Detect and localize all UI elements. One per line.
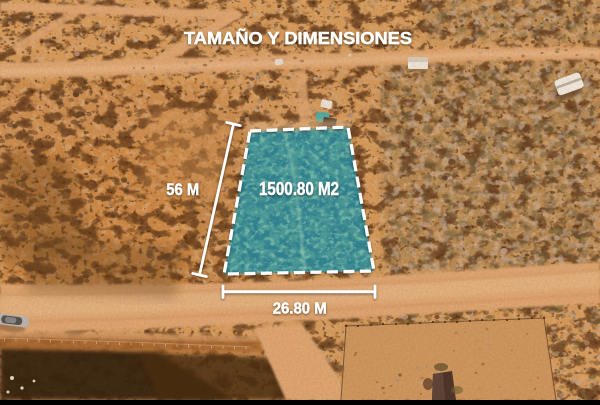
svg-text:56 M: 56 M bbox=[166, 180, 199, 199]
svg-text:26.80 M: 26.80 M bbox=[273, 301, 327, 318]
svg-text:TAMAÑO Y DIMENSIONES: TAMAÑO Y DIMENSIONES bbox=[184, 27, 412, 48]
svg-text:1500.80 M2: 1500.80 M2 bbox=[259, 179, 339, 199]
